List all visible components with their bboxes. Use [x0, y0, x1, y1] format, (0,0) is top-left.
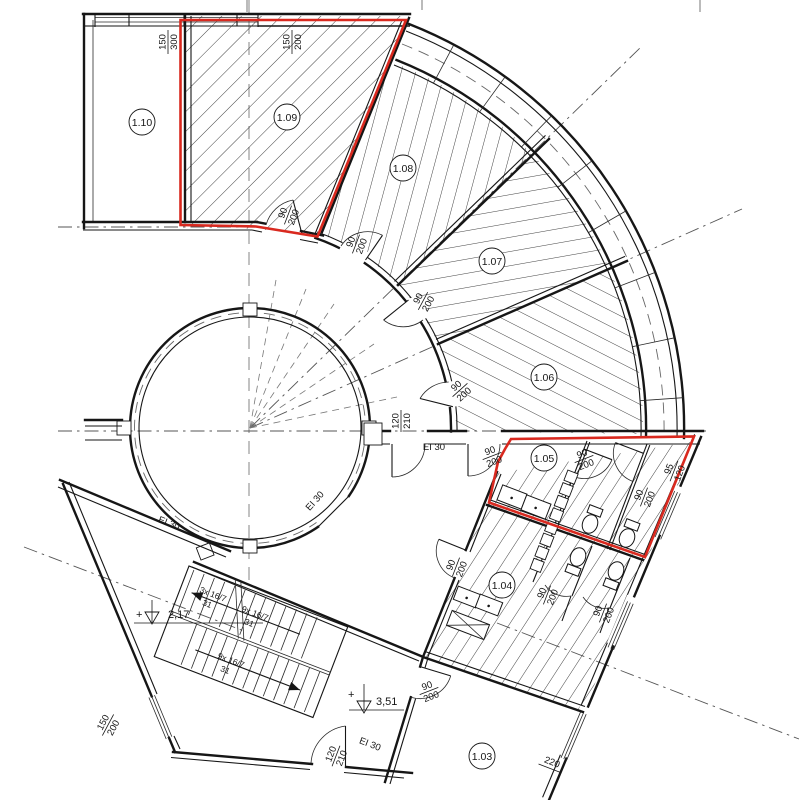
svg-text:1.09: 1.09 [277, 112, 298, 124]
svg-text:31: 31 [219, 663, 232, 676]
svg-text:200: 200 [293, 34, 304, 50]
dim-window-150-200-left: 150 200 [93, 709, 124, 741]
window-150-200-left [149, 695, 172, 739]
svg-text:150: 150 [282, 34, 293, 50]
svg-text:1.03: 1.03 [472, 751, 493, 763]
column [243, 540, 257, 553]
svg-text:1.07: 1.07 [482, 256, 503, 268]
west-corridor-stub [85, 420, 122, 440]
dim-fire-door-main: 120210 [391, 410, 414, 432]
column [117, 421, 131, 435]
room-label-103: 1.03 [469, 743, 495, 769]
fire-rating-lower-door: EI 30 [358, 736, 383, 754]
svg-text:1.04: 1.04 [492, 580, 513, 592]
door-leaf-104 [439, 539, 466, 550]
wall-nib [364, 423, 382, 445]
fire-rating-core-door: EI 30 [304, 489, 327, 513]
door-leaf-107 [384, 300, 409, 320]
svg-text:1.10: 1.10 [132, 117, 153, 129]
room-label-106: 1.06 [531, 364, 557, 390]
svg-text:150: 150 [158, 34, 169, 50]
room-label-110: 1.10 [129, 109, 155, 135]
svg-text:120: 120 [391, 413, 402, 429]
floor-plan-canvas: 1.10 1.09 1.08 1.07 1.06 1.05 1.04 1.03 … [0, 0, 799, 800]
dim-window-150-300: 150 300 [158, 30, 181, 54]
svg-text:220: 220 [543, 755, 562, 771]
stair-label-lower: 9x 16/7 31 [212, 651, 246, 681]
svg-text:3,51: 3,51 [376, 696, 397, 708]
stair-label-upper: 9x 16/7 31 [236, 604, 270, 634]
svg-text:1.06: 1.06 [534, 372, 555, 384]
room-label-109: 1.09 [274, 104, 300, 130]
room-label-108: 1.08 [390, 155, 416, 181]
room-label-107: 1.07 [479, 248, 505, 274]
svg-text:210: 210 [402, 413, 413, 429]
level-marker-351: + 3,51 [348, 684, 404, 713]
svg-text:1.05: 1.05 [534, 453, 555, 465]
svg-text:300: 300 [169, 34, 180, 50]
door-leaf-103 [420, 667, 451, 676]
svg-text:2,17: 2,17 [168, 609, 189, 621]
room-label-104: 1.04 [489, 572, 515, 598]
fire-door-swing-main [392, 444, 425, 477]
room-label-105: 1.05 [531, 445, 557, 471]
svg-text:+: + [136, 609, 142, 621]
circular-core [85, 303, 376, 560]
floor-plan-drawing: 1.10 1.09 1.08 1.07 1.06 1.05 1.04 1.03 … [0, 0, 799, 800]
dim-door-103: 90200 [416, 678, 443, 706]
fire-rating-main-door: EI 30 [423, 442, 445, 453]
window-right-low [560, 705, 607, 766]
svg-text:1.08: 1.08 [393, 163, 414, 175]
svg-text:+: + [348, 689, 354, 701]
column [243, 303, 257, 316]
